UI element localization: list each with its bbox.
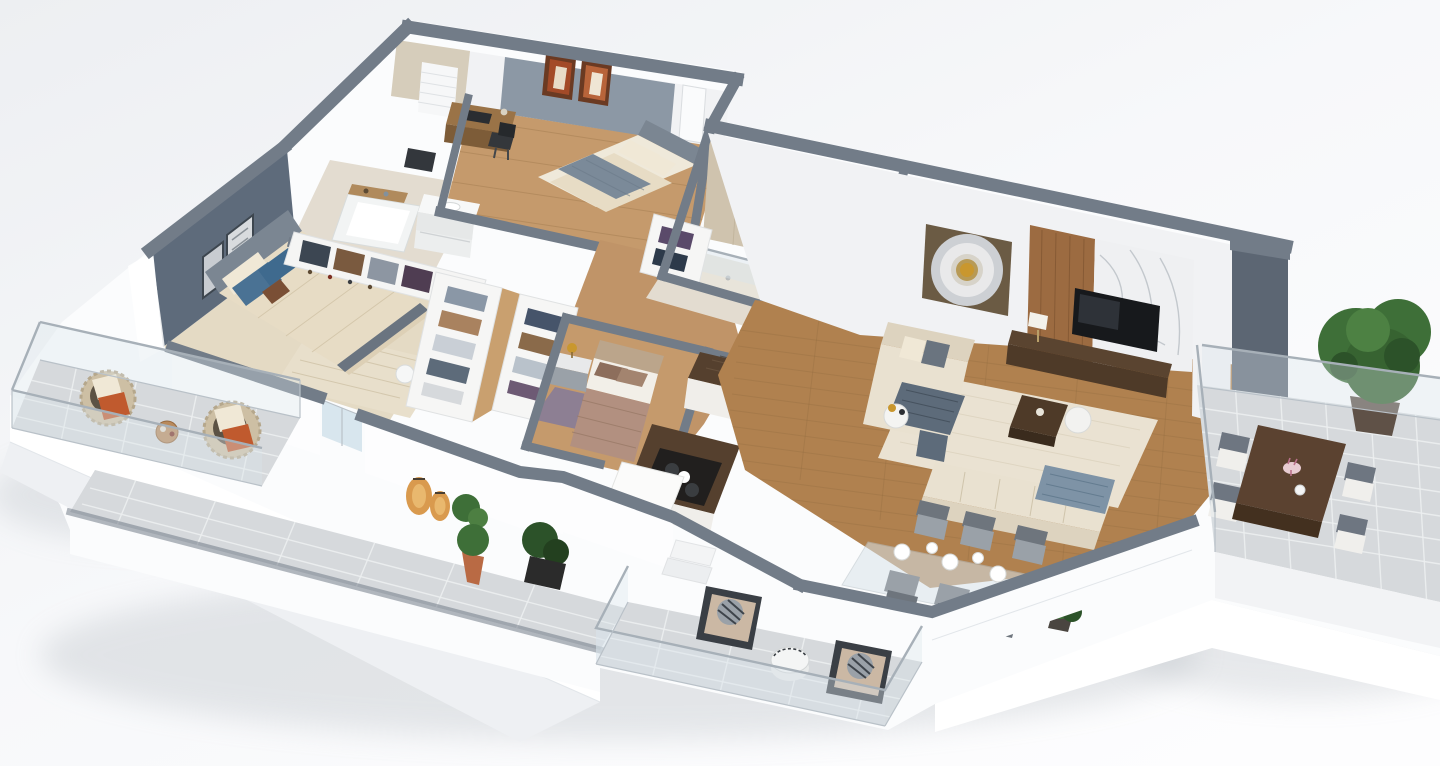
guest-door [679, 85, 706, 143]
right-balcony [1197, 299, 1440, 648]
floor-plan-3d-render [0, 0, 1440, 766]
gold-table-lamp [567, 343, 577, 353]
side-table-gold-lamp [884, 404, 908, 428]
flower-vase [1283, 462, 1301, 474]
lounge-chair-1 [696, 586, 762, 650]
nesting-table [1065, 407, 1091, 433]
floor-plan-stage [0, 0, 1440, 766]
